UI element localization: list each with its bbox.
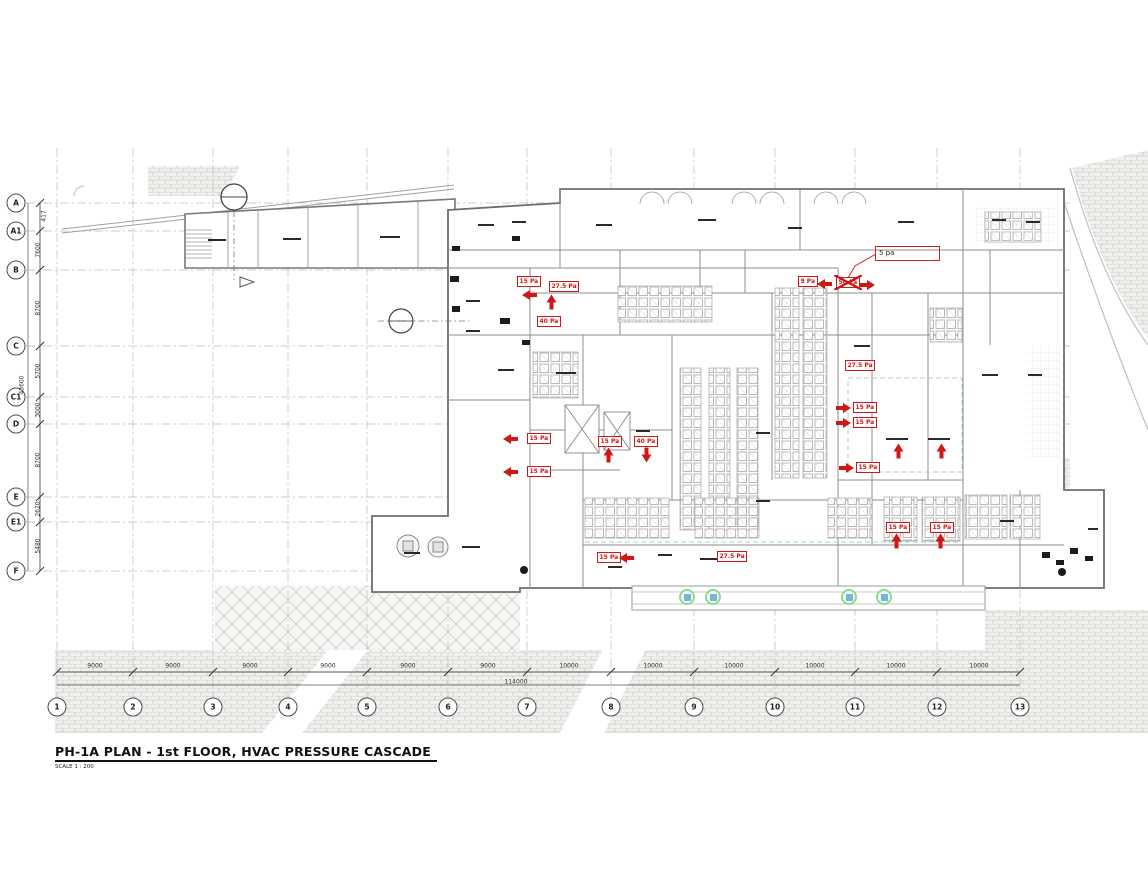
pressure-arrow-icon: [817, 279, 832, 289]
row-bubble: F: [7, 562, 26, 581]
drawing-scale: SCALE 1 : 200: [55, 764, 437, 770]
pressure-label: 40 Pa: [634, 436, 658, 447]
col-dim-label: 10000: [559, 663, 578, 670]
pressure-label: 40 Pa: [537, 316, 561, 327]
col-dim-label: 9000: [400, 663, 415, 670]
pressure-label: 15 Pa: [597, 552, 621, 563]
row-bubble: E: [7, 488, 26, 507]
pressure-label: 27.5 Pa: [549, 281, 579, 292]
col-bubble: 11: [846, 698, 865, 717]
row-dim-label: 3000: [35, 402, 42, 417]
pressure-label: 15 Pa: [930, 522, 954, 533]
row-dim-label: 2620: [35, 501, 42, 516]
pressure-label: 15 Pa: [853, 417, 877, 428]
green-marker-icon: [679, 589, 695, 605]
row-bubble: A1: [7, 222, 26, 241]
row-dim-label: 7600: [35, 242, 42, 257]
pressure-arrow-icon: [642, 448, 652, 463]
col-dim-label: 10000: [969, 663, 988, 670]
col-bubble: 8: [602, 698, 621, 717]
pressure-label: 15 Pa: [856, 462, 880, 473]
pressure-label: 27.5 Pa: [845, 360, 875, 371]
pressure-arrow-icon: [860, 280, 875, 290]
pressure-label: 15 Pa: [527, 433, 551, 444]
pressure-arrow-icon: [547, 295, 557, 310]
pressure-arrow-icon: [839, 463, 854, 473]
overall-height-dim: 43600: [19, 375, 26, 394]
pressure-arrow-icon: [894, 444, 904, 459]
pressure-arrow-icon: [604, 448, 614, 463]
col-bubble: 5: [358, 698, 377, 717]
revision-callout: 5 pa: [875, 246, 940, 261]
row-bubble: E1: [7, 513, 26, 532]
col-dim-label: 9000: [320, 663, 335, 670]
row-dim-label: 5480: [35, 538, 42, 553]
col-dim-label: 10000: [805, 663, 824, 670]
row-bubble: B: [7, 261, 26, 280]
pressure-arrow-icon: [937, 444, 947, 459]
col-dim-label: 10000: [643, 663, 662, 670]
green-marker-icon: [705, 589, 721, 605]
drawing-title: PH-1A PLAN - 1st FLOOR, HVAC PRESSURE CA…: [55, 744, 437, 762]
col-dim-label: 9000: [242, 663, 257, 670]
col-bubble: 6: [439, 698, 458, 717]
col-bubble: 7: [518, 698, 537, 717]
row-dim-label: 8700: [35, 300, 42, 315]
row-dim-label: 5700: [35, 363, 42, 378]
pressure-arrow-icon: [936, 534, 946, 549]
col-dim-label: 10000: [886, 663, 905, 670]
pressure-arrow-icon: [503, 434, 518, 444]
row-dim-label: 8700: [35, 452, 42, 467]
green-marker-icon: [841, 589, 857, 605]
pressure-label: 15 Pa: [886, 522, 910, 533]
pressure-label: 50 Pa: [836, 277, 860, 288]
col-bubble: 2: [124, 698, 143, 717]
floor-plan-canvas: AA1BCC1DEE1F 12345678910111213 417760087…: [0, 0, 1148, 878]
pressure-label: 27.5 Pa: [717, 551, 747, 562]
pressure-arrow-icon: [892, 534, 902, 549]
row-bubble: A: [7, 194, 26, 213]
col-dim-label: 10000: [724, 663, 743, 670]
pressure-arrow-icon: [522, 290, 537, 300]
col-dim-label: 9000: [87, 663, 102, 670]
col-bubble: 12: [928, 698, 947, 717]
col-bubble: 9: [685, 698, 704, 717]
row-bubble: D: [7, 415, 26, 434]
pressure-label: 15 Pa: [598, 436, 622, 447]
pressure-label: 9 Pa: [798, 276, 818, 287]
col-bubble: 1: [48, 698, 67, 717]
pressure-arrow-icon: [503, 467, 518, 477]
title-block: PH-1A PLAN - 1st FLOOR, HVAC PRESSURE CA…: [55, 741, 437, 770]
pressure-label: 15 Pa: [853, 402, 877, 413]
green-marker-icon: [876, 589, 892, 605]
pressure-arrow-icon: [836, 418, 851, 428]
col-bubble: 4: [279, 698, 298, 717]
col-bubble: 10: [766, 698, 785, 717]
pressure-label: 15 Pa: [517, 276, 541, 287]
row-bubble: C: [7, 337, 26, 356]
col-dim-label: 9000: [165, 663, 180, 670]
overall-width-dim: 114000: [505, 679, 528, 686]
pressure-arrow-icon: [836, 403, 851, 413]
west-wing: [185, 199, 455, 268]
row-dim-label: 417: [41, 210, 48, 221]
col-bubble: 13: [1011, 698, 1030, 717]
col-bubble: 3: [204, 698, 223, 717]
pressure-arrow-icon: [619, 553, 634, 563]
pressure-label: 15 Pa: [527, 466, 551, 477]
col-dim-label: 9000: [480, 663, 495, 670]
